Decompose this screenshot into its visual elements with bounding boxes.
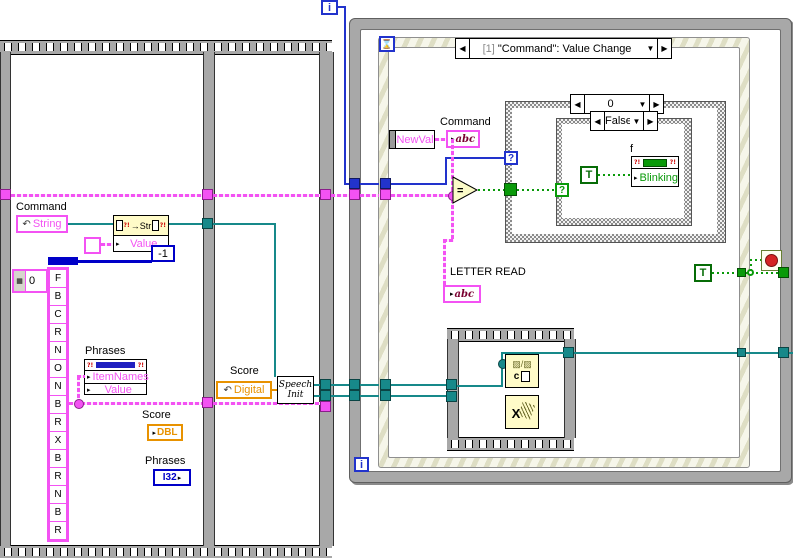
tunnel[interactable] bbox=[320, 390, 331, 401]
iteration-wire[interactable] bbox=[344, 6, 346, 185]
wire-junction bbox=[747, 269, 754, 276]
command-string-wire[interactable] bbox=[391, 194, 453, 197]
control-arrow-icon: ↶ bbox=[22, 219, 30, 230]
phrases-i32-terminal[interactable]: I32 ▸ bbox=[153, 469, 191, 486]
iteration-wire[interactable] bbox=[445, 157, 447, 185]
tunnel[interactable] bbox=[202, 189, 213, 200]
letter-array[interactable]: FBCRNONBRXBRNBR bbox=[47, 267, 69, 542]
command-string-wire[interactable] bbox=[11, 194, 202, 197]
speech-close-subvi[interactable]: ▨/▨ c bbox=[505, 354, 539, 388]
event-timeout-terminal[interactable]: ⌛ bbox=[379, 36, 395, 52]
speech-init-subvi[interactable]: Speech Init bbox=[277, 376, 314, 404]
event-dropdown-icon[interactable]: ▼ bbox=[644, 39, 657, 58]
command-string-wire[interactable] bbox=[213, 194, 320, 197]
index-spinner-icon[interactable]: ▦ bbox=[14, 271, 26, 291]
array-element[interactable]: R bbox=[50, 522, 66, 539]
array-element[interactable]: N bbox=[50, 378, 66, 395]
tunnel[interactable] bbox=[563, 347, 574, 358]
tunnel[interactable] bbox=[380, 178, 391, 189]
tunnel[interactable] bbox=[380, 390, 391, 401]
page-icon bbox=[116, 220, 123, 231]
hatch-glyph-icon: ▨/▨ bbox=[512, 360, 532, 369]
newval-event-data-node[interactable]: NewVal bbox=[389, 130, 435, 149]
string-wire[interactable] bbox=[68, 223, 113, 225]
hourglass-icon: ⌛ bbox=[381, 39, 392, 50]
empty-string-constant[interactable] bbox=[84, 237, 101, 254]
sequence-left-border[interactable] bbox=[0, 52, 11, 546]
svg-text:=: = bbox=[457, 185, 463, 197]
sequence-frame-divider[interactable] bbox=[203, 52, 215, 546]
tunnel[interactable] bbox=[349, 390, 360, 401]
iteration-wire[interactable] bbox=[360, 183, 379, 185]
array-element[interactable]: X bbox=[50, 432, 66, 449]
string-wire[interactable] bbox=[274, 223, 276, 377]
abort-subvi[interactable]: X bbox=[505, 395, 539, 429]
digital-control-terminal[interactable]: ↶ Digital bbox=[216, 381, 272, 399]
refnum-wire[interactable] bbox=[746, 352, 778, 354]
phrases-array-wire[interactable] bbox=[69, 402, 203, 405]
inner-sequence-bottom-border[interactable] bbox=[447, 437, 574, 451]
tunnel[interactable] bbox=[380, 189, 391, 200]
blinking-property-node[interactable]: ?! ?! ▸ Blinking bbox=[631, 156, 679, 187]
score-indicator-label: Score bbox=[142, 409, 171, 421]
equals-node[interactable]: = bbox=[452, 176, 479, 204]
event-prev-icon[interactable]: ◀ bbox=[456, 39, 470, 58]
phrases-property-node[interactable]: ?! ?! ▸ ItemNames ▸ Value bbox=[84, 359, 147, 395]
boolean-wire[interactable] bbox=[750, 259, 761, 261]
tunnel[interactable] bbox=[778, 347, 789, 358]
refnum-wire[interactable] bbox=[501, 352, 503, 387]
while-iteration-terminal[interactable]: i bbox=[354, 457, 369, 472]
string-control-terminal[interactable]: ↶ String bbox=[16, 215, 68, 233]
page-icon bbox=[152, 220, 159, 231]
array-element[interactable]: B bbox=[50, 396, 66, 413]
refnum-wire[interactable] bbox=[574, 352, 738, 354]
array-element[interactable]: C bbox=[50, 306, 66, 323]
array-element[interactable]: B bbox=[50, 450, 66, 467]
refnum-wire[interactable] bbox=[331, 395, 349, 397]
phrases-label: Phrases bbox=[85, 345, 125, 357]
boolean-wire[interactable] bbox=[478, 189, 505, 191]
tunnel[interactable] bbox=[504, 183, 517, 196]
boolean-wire[interactable] bbox=[712, 272, 738, 274]
refnum-wire[interactable] bbox=[457, 385, 503, 387]
event-next-icon[interactable]: ▶ bbox=[657, 39, 671, 58]
string-wire[interactable] bbox=[435, 138, 446, 141]
sequence-top-border[interactable] bbox=[0, 40, 332, 55]
refnum-wire[interactable] bbox=[360, 395, 379, 397]
array-index-display[interactable]: ▦ 0 bbox=[12, 269, 48, 293]
true-constant[interactable]: T bbox=[694, 264, 712, 282]
minus-one-constant[interactable]: -1 bbox=[151, 245, 175, 262]
tunnel[interactable] bbox=[446, 391, 457, 402]
tunnel[interactable] bbox=[380, 379, 391, 390]
outer-case-selector-terminal[interactable]: ? bbox=[504, 151, 518, 165]
command-local-label: Command bbox=[440, 116, 491, 128]
stop-icon bbox=[765, 254, 778, 267]
score-control-label: Score bbox=[230, 365, 259, 377]
array-element[interactable]: O bbox=[50, 360, 66, 377]
tunnel[interactable] bbox=[349, 189, 360, 200]
array-element[interactable]: B bbox=[50, 288, 66, 305]
outer-iteration-terminal[interactable]: i bbox=[321, 0, 338, 15]
inner-case-selector-label: False bbox=[605, 115, 630, 127]
case-next-icon[interactable]: ▶ bbox=[643, 112, 657, 130]
true-constant[interactable]: T bbox=[580, 166, 598, 184]
boolean-wire[interactable] bbox=[598, 174, 632, 176]
letter-read-label: LETTER READ bbox=[450, 266, 526, 278]
inner-case-selector[interactable]: ◀ False ▼ ▶ bbox=[590, 111, 658, 131]
index-wire-junction[interactable] bbox=[48, 257, 78, 265]
tunnel[interactable] bbox=[320, 189, 331, 200]
command-string-wire[interactable] bbox=[360, 194, 379, 197]
command-label: Command bbox=[16, 201, 67, 213]
tunnel[interactable] bbox=[737, 348, 746, 357]
case-prev-icon[interactable]: ◀ bbox=[591, 112, 605, 130]
sequence-right-border[interactable] bbox=[319, 52, 334, 546]
tunnel[interactable] bbox=[349, 178, 360, 189]
refnum-wire[interactable] bbox=[391, 384, 447, 386]
refnum-wire[interactable] bbox=[331, 384, 349, 386]
tunnel[interactable] bbox=[349, 379, 360, 390]
tunnel[interactable] bbox=[778, 267, 789, 278]
array-element[interactable]: F bbox=[50, 270, 66, 287]
tunnel[interactable] bbox=[320, 379, 331, 390]
array-element[interactable]: N bbox=[50, 342, 66, 359]
string-wire[interactable] bbox=[213, 223, 276, 225]
score-dbl-terminal[interactable]: ▸ DBL bbox=[147, 424, 183, 441]
command-string-wire[interactable] bbox=[331, 194, 349, 197]
outer-case-selector-label: 0 bbox=[585, 98, 636, 110]
event-selector[interactable]: ◀ [1] "Command": Value Change ▼ ▶ bbox=[455, 38, 672, 59]
sequence-bottom-border[interactable] bbox=[0, 545, 332, 558]
phrases-indicator-label: Phrases bbox=[145, 455, 185, 467]
array-element[interactable]: B bbox=[50, 504, 66, 521]
string-wire[interactable] bbox=[101, 243, 113, 246]
tunnel[interactable] bbox=[320, 401, 331, 412]
f-label: f bbox=[630, 143, 633, 155]
array-element[interactable]: R bbox=[50, 468, 66, 485]
iteration-wire[interactable] bbox=[445, 157, 505, 159]
iteration-wire[interactable] bbox=[391, 183, 447, 185]
method-label: →Str bbox=[131, 221, 152, 231]
labview-block-diagram: ◀ [1] "Command": Value Change ▼ ▶ ⌛ Comm… bbox=[0, 0, 793, 558]
string-wire[interactable] bbox=[169, 223, 203, 225]
case-dropdown-icon[interactable]: ▼ bbox=[630, 112, 643, 130]
event-selector-label: [1] "Command": Value Change bbox=[470, 43, 644, 55]
boolean-wire[interactable] bbox=[517, 189, 556, 191]
inner-case-selector-terminal[interactable]: ? bbox=[555, 183, 569, 197]
property-node-bar bbox=[96, 362, 135, 368]
tunnel[interactable] bbox=[737, 268, 746, 277]
refnum-wire[interactable] bbox=[391, 395, 447, 397]
array-element[interactable]: R bbox=[50, 324, 66, 341]
phrases-array-wire[interactable] bbox=[77, 375, 85, 378]
tunnel[interactable] bbox=[0, 189, 11, 200]
refnum-wire[interactable] bbox=[360, 384, 379, 386]
tunnel[interactable] bbox=[202, 397, 213, 408]
array-element[interactable]: R bbox=[50, 414, 66, 431]
tunnel[interactable] bbox=[446, 379, 457, 390]
page-icon bbox=[521, 371, 530, 382]
tunnel[interactable] bbox=[202, 218, 213, 229]
control-arrow-icon: ↶ bbox=[224, 385, 232, 396]
string-wire[interactable] bbox=[443, 239, 446, 285]
array-element[interactable]: N bbox=[50, 486, 66, 503]
wire-junction bbox=[74, 399, 84, 409]
case-prev-icon[interactable]: ◀ bbox=[571, 95, 585, 113]
property-node-bar bbox=[643, 159, 667, 167]
letter-read-local-variable[interactable]: ▸ abc bbox=[443, 285, 481, 303]
inner-sequence-top-border[interactable] bbox=[447, 328, 574, 342]
refnum-wire[interactable] bbox=[789, 352, 793, 354]
